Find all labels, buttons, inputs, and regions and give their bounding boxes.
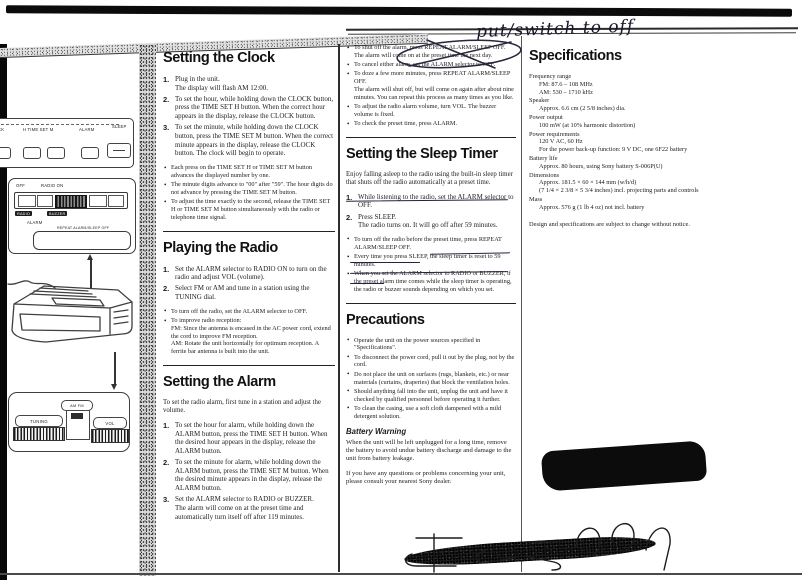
column-divider-1	[338, 44, 340, 572]
sleep-note: When you set the ALARM selector to RADIO…	[354, 270, 516, 293]
clock-note: Each press on the TIME SET H or TIME SET…	[171, 164, 335, 180]
alarm-usage-note: To adjust the radio alarm volume, turn V…	[354, 103, 516, 119]
sleep-button-label: SLEEP	[112, 124, 127, 129]
radio-on-position-label: RADIO ON	[41, 183, 63, 188]
alarm-selector-panel-illustration: OFF RADIO ON RADIO BUZZER ALARM REPEAT A…	[8, 178, 136, 254]
sleep-button	[107, 143, 131, 158]
spec-label: Power output	[529, 114, 709, 122]
radio-setting-label: RADIO	[15, 211, 32, 216]
selector-knob	[55, 195, 87, 208]
clock-note: The minute digits advance to "00" after …	[171, 181, 335, 197]
battery-warning-title: Battery Warning	[346, 427, 516, 437]
time-set-buttons-label: H TIME SET M	[23, 127, 53, 132]
setting-alarm-intro: To set the radio alarm, first tune in a …	[163, 399, 335, 416]
specifications-title: Specifications	[529, 48, 709, 66]
band-switch-knob	[71, 413, 83, 419]
spec-entry: Dimensions Approx. 181.5 × 60 × 144 mm (…	[529, 172, 709, 195]
spec-value: FM: 87.6 – 108 MHz AM: 530 – 1710 kHz	[539, 81, 709, 97]
sleep-timer-intro: Enjoy falling asleep to the radio using …	[346, 171, 516, 188]
selector-segment	[37, 195, 53, 207]
alarm-usage-note: To doze a few more minutes, press REPEAT…	[354, 70, 516, 101]
spec-entry: Power output 100 mW (at 10% harmonic dis…	[529, 114, 709, 130]
precaution-item: Do not place the unit on surfaces (rugs,…	[354, 371, 516, 387]
section-divider	[163, 365, 335, 366]
down-arrow-line	[114, 352, 116, 384]
radio-step: Set the ALARM selector to RADIO ON to tu…	[175, 265, 335, 282]
clock-radio-perspective-illustration	[0, 264, 140, 364]
alarm-usage-note: To check the preset time, press ALARM.	[354, 120, 516, 128]
spec-entry: Frequency range FM: 87.6 – 108 MHz AM: 5…	[529, 73, 709, 96]
spec-label: Mass	[529, 196, 709, 204]
pen-circle-annotation	[393, 36, 527, 74]
column-2: To shut off the alarm, press REPEAT ALAR…	[346, 44, 516, 492]
setting-clock-title: Setting the Clock	[163, 50, 335, 68]
alarm-button-label: ALARM	[79, 127, 94, 132]
playing-radio-steps: Set the ALARM selector to RADIO ON to tu…	[163, 265, 335, 302]
tuning-dial	[13, 427, 65, 441]
clock-note: To adjust the time exactly to the second…	[171, 198, 335, 221]
playing-radio-notes: To turn off the radio, set the ALARM sel…	[163, 308, 335, 356]
clock-button	[0, 147, 11, 159]
column-3: Specifications Frequency range FM: 87.6 …	[529, 48, 709, 235]
battery-warning-text: When the unit will be left unplugged for…	[346, 439, 516, 464]
dealer-note: If you have any questions or problems co…	[346, 470, 516, 486]
buzzer-setting-label: BUZZER	[47, 211, 67, 216]
spec-value: Approx. 181.5 × 60 × 144 mm (w/h/d) (7 1…	[539, 179, 709, 195]
section-divider	[346, 137, 516, 138]
booklet-spine-shadow	[139, 44, 156, 576]
clock-step: Plug in the unit. The display will flash…	[175, 75, 335, 92]
setting-alarm-title: Setting the Alarm	[163, 374, 335, 392]
off-position-label: OFF	[16, 183, 25, 188]
sleep-timer-title: Setting the Sleep Timer	[346, 146, 516, 164]
spec-label: Speaker	[529, 97, 709, 105]
alarm-step: Set the ALARM selector to RADIO or BUZZE…	[175, 495, 335, 521]
spec-label: Power requirements	[529, 131, 709, 139]
clock-step: To set the minute, while holding down th…	[175, 123, 335, 158]
alarm-selector-label: ALARM	[27, 220, 42, 225]
sleep-step: Press SLEEP. The radio turns on. It will…	[358, 213, 516, 230]
spec-value: 100 mW (at 10% harmonic distortion)	[539, 122, 709, 130]
vol-label: VOL	[93, 417, 127, 429]
side-controls-illustration: AM FM TUNING VOL	[8, 392, 130, 452]
device-top-view-illustration: CK H TIME SET M ALARM SLEEP	[0, 118, 134, 168]
alarm-step: To set the hour for alarm, while holding…	[175, 421, 335, 456]
spec-value: 120 V AC, 60 Hz For the power back-up fu…	[539, 138, 709, 154]
spec-value: Approx. 576 g (1 lb 4 oz) not incl. batt…	[539, 204, 709, 212]
precaution-item: To disconnect the power cord, pull it ou…	[354, 354, 516, 370]
sleep-timer-notes: To turn off the radio before the preset …	[346, 236, 516, 294]
vol-dial	[91, 429, 129, 443]
precautions-title: Precautions	[346, 312, 516, 330]
column-1: Setting the Clock Plug in the unit. The …	[163, 50, 335, 527]
spec-label: Dimensions	[529, 172, 709, 180]
selector-segment	[18, 195, 36, 207]
column-divider-2	[521, 36, 522, 572]
sleep-step: While listening to the radio, set the AL…	[358, 193, 516, 210]
radio-note: To improve radio reception: FM: Since th…	[171, 317, 335, 356]
redaction-block	[541, 440, 707, 491]
selector-segment	[108, 195, 124, 207]
alarm-button	[81, 147, 99, 159]
section-divider	[346, 303, 516, 304]
tuning-label: TUNING	[15, 415, 63, 427]
spec-value: Approx. 80 hours, using Sony battery S-0…	[539, 163, 709, 171]
precautions-list: Operate the unit on the power sources sp…	[346, 337, 516, 421]
specs-footnote: Design and specifications are subject to…	[529, 221, 709, 229]
alarm-step: To set the minute for alarm, while holdi…	[175, 458, 335, 493]
spec-entry: Power requirements 120 V AC, 60 Hz For t…	[529, 131, 709, 154]
panel-dashed-line	[1, 124, 119, 125]
spec-label: Frequency range	[529, 73, 709, 81]
spec-value: Approx. 6.6 cm (2 5/8 inches) dia.	[539, 105, 709, 113]
sleep-note: To turn off the radio before the preset …	[354, 236, 516, 252]
section-divider	[163, 231, 335, 232]
radio-step: Select FM or AM and tune in a station us…	[175, 284, 335, 301]
precaution-item: To clean the casing, use a soft cloth da…	[354, 405, 516, 421]
sleep-note: Every time you press SLEEP, the sleep ti…	[354, 253, 516, 269]
playing-radio-title: Playing the Radio	[163, 240, 335, 258]
setting-clock-steps: Plug in the unit. The display will flash…	[163, 75, 335, 158]
repeat-alarm-sleep-off-label: REPEAT ALARM/SLEEP OFF	[57, 226, 109, 230]
precaution-item: Should anything fall into the unit, unpl…	[354, 388, 516, 404]
time-set-m-button	[47, 147, 65, 159]
clock-step: To set the hour, while holding down the …	[175, 95, 335, 121]
radio-note: To turn off the radio, set the ALARM sel…	[171, 308, 335, 316]
sleep-timer-steps: While listening to the radio, set the AL…	[346, 193, 516, 230]
setting-alarm-steps: To set the hour for alarm, while holding…	[163, 421, 335, 521]
spec-label: Battery life	[529, 155, 709, 163]
clock-button-label: CK	[0, 127, 4, 132]
setting-clock-notes: Each press on the TIME SET H or TIME SET…	[163, 164, 335, 222]
spec-entry: Battery life Approx. 80 hours, using Son…	[529, 155, 709, 171]
down-arrow-icon	[111, 384, 117, 390]
spec-entry: Speaker Approx. 6.6 cm (2 5/8 inches) di…	[529, 97, 709, 113]
time-set-h-button	[23, 147, 41, 159]
selector-segment	[89, 195, 107, 207]
spec-entry: Mass Approx. 576 g (1 lb 4 oz) not incl.…	[529, 196, 709, 212]
repeat-alarm-sleep-off-button	[33, 231, 131, 250]
precaution-item: Operate the unit on the power sources sp…	[354, 337, 516, 353]
pen-scribble	[398, 498, 684, 578]
alarm-selector-slider	[14, 192, 128, 209]
